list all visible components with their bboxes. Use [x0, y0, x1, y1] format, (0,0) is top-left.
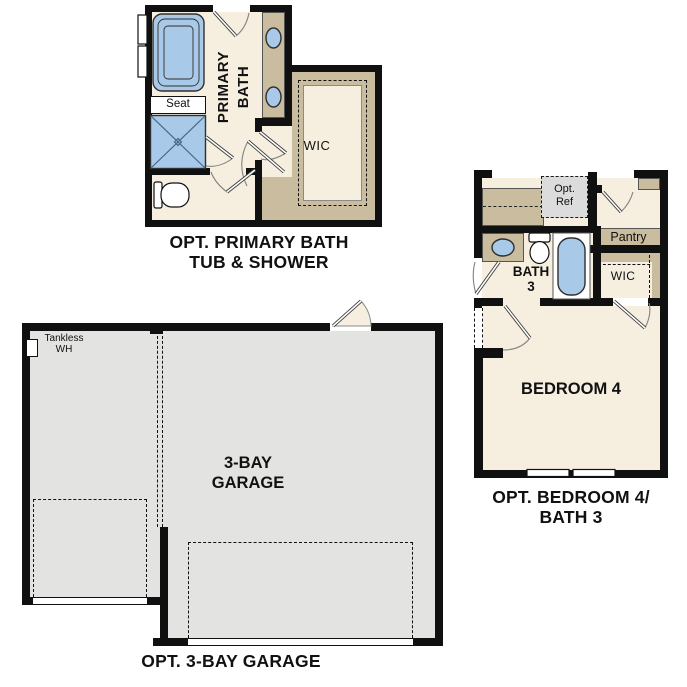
floor-plan-sheet: PRIMARY BATH Seat WIC OPT. PRIMARY BATH … — [0, 0, 687, 687]
counter-dashed-line — [483, 206, 543, 207]
wall — [255, 118, 292, 126]
opt-ref-box: Opt. Ref — [541, 176, 588, 218]
wall — [474, 170, 482, 258]
wic2-shelf-top — [598, 253, 660, 262]
primary-bath-caption-line1: OPT. PRIMARY BATH — [109, 232, 409, 252]
tankless-label: Tankless WH — [34, 333, 94, 355]
wall — [145, 5, 152, 227]
wall — [22, 323, 30, 605]
vanity-counter — [262, 12, 285, 118]
wall — [160, 527, 168, 646]
wic2-shelf-right — [652, 253, 660, 298]
wall — [150, 323, 163, 334]
wic-label: WIC — [287, 138, 347, 153]
wall — [145, 5, 213, 12]
wic-shelving-ext — [262, 177, 292, 220]
wall — [634, 170, 668, 178]
bedroom4-label: BEDROOM 4 — [491, 380, 651, 399]
garage-open-wall-dashed — [157, 331, 158, 527]
wall — [483, 348, 503, 358]
wall — [648, 298, 660, 306]
garage-door-opening-main — [188, 638, 413, 646]
wall — [285, 65, 382, 72]
garage-apron-dashed-left — [33, 499, 147, 597]
wall — [474, 298, 503, 306]
wall — [145, 220, 382, 227]
wall — [588, 172, 597, 226]
seat-label: Seat — [150, 98, 206, 110]
bedroom4-caption-line1: OPT. BEDROOM 4/ — [446, 487, 687, 507]
wall — [375, 65, 382, 227]
wall — [474, 170, 492, 178]
wic2-rod-dashed2 — [649, 255, 650, 298]
garage-label: 3-BAY GARAGE — [168, 454, 328, 493]
wall — [22, 323, 330, 331]
bedroom4-caption-line2: BATH 3 — [446, 507, 687, 527]
wall — [147, 597, 160, 605]
wic2-label: WIC — [597, 269, 649, 283]
wall — [435, 323, 443, 646]
wall — [371, 323, 443, 331]
wall — [474, 226, 597, 233]
garage-caption: OPT. 3-BAY GARAGE — [81, 651, 381, 671]
pantry-label: Pantry — [597, 230, 660, 244]
wall — [474, 470, 668, 478]
pantry-upper-cabinet — [638, 178, 660, 190]
garage-apron-dashed-main — [188, 542, 413, 638]
primary-bath-caption-line2: TUB & SHOWER — [109, 252, 409, 272]
wall — [474, 348, 483, 478]
bath3-vanity — [482, 233, 524, 262]
optional-wall-dashed — [474, 308, 483, 348]
door-garage-entry — [333, 301, 371, 326]
wall — [660, 170, 668, 478]
wall — [540, 298, 601, 306]
garage-open-wall-dashed2 — [162, 331, 163, 527]
wall — [150, 168, 210, 175]
primary-bath-room-label: PRIMARY BATH — [214, 27, 254, 147]
wall — [413, 638, 443, 646]
wall — [590, 245, 668, 253]
garage-door-opening-left — [33, 597, 147, 605]
wall — [153, 638, 188, 646]
wall — [601, 298, 613, 306]
wall — [588, 185, 602, 193]
wall — [22, 597, 33, 605]
wic2-rod-dashed — [598, 264, 660, 265]
wall — [246, 168, 262, 175]
laundry-counter — [482, 188, 544, 226]
wall — [255, 126, 262, 132]
bath3-label: BATH 3 — [496, 265, 566, 294]
